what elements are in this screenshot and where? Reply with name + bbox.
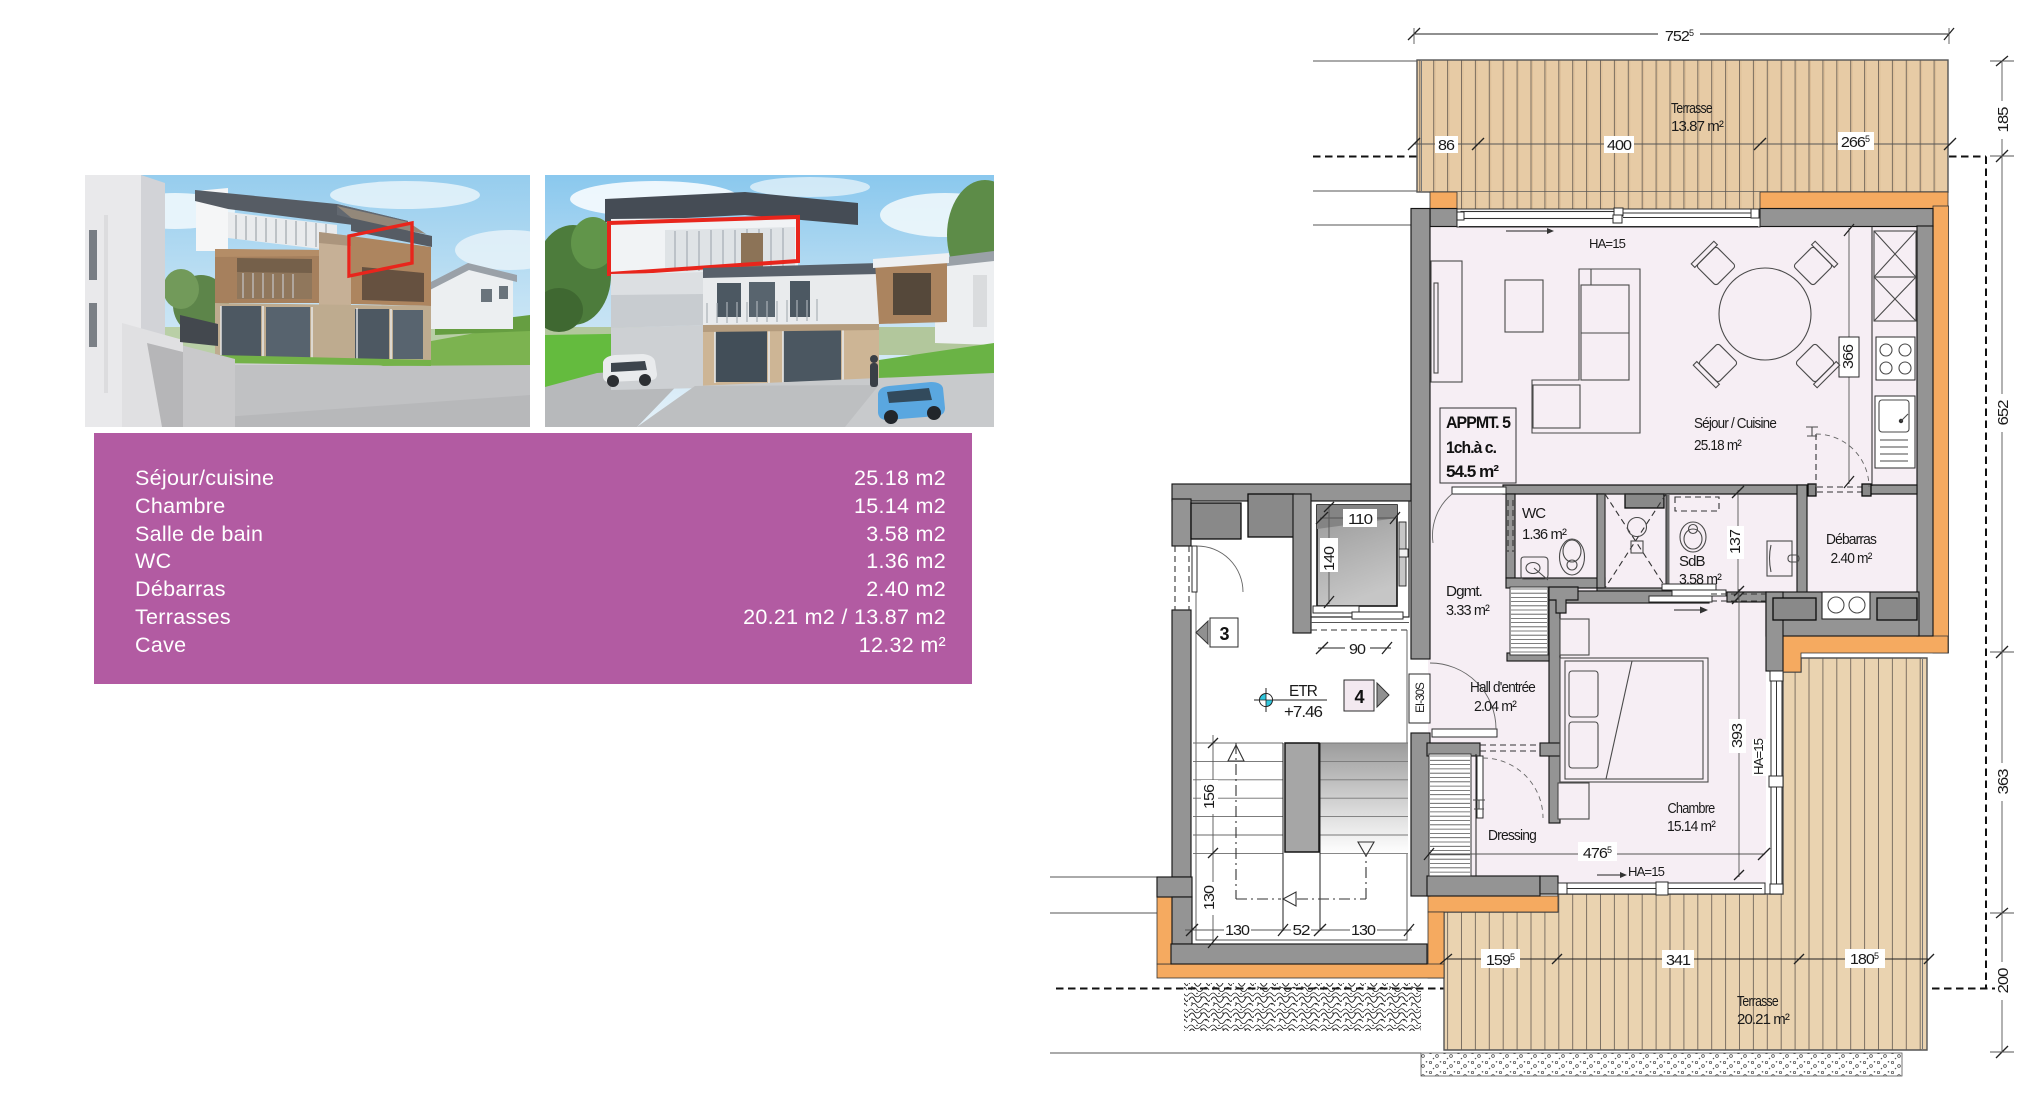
svg-text:2.04 m²: 2.04 m² [1474,698,1517,715]
svg-text:2.40 m²: 2.40 m² [1831,550,1873,567]
svg-text:HA=15: HA=15 [1752,738,1766,775]
svg-text:130: 130 [1351,922,1376,939]
svg-text:Débarras: Débarras [1826,531,1876,548]
svg-text:20.21 m²: 20.21 m² [1737,1011,1790,1028]
svg-text:Terrasse: Terrasse [1671,100,1712,117]
svg-text:25.18 m²: 25.18 m² [1694,437,1742,454]
svg-text:HA=15: HA=15 [1589,236,1626,251]
svg-text:52: 52 [1293,922,1311,939]
svg-text:363: 363 [1995,769,2012,795]
svg-text:SdB: SdB [1679,553,1706,570]
svg-text:200: 200 [1995,968,2012,994]
svg-text:HA=15: HA=15 [1628,864,1665,879]
svg-text:156: 156 [1201,784,1218,809]
svg-text:130: 130 [1201,885,1218,910]
svg-text:110: 110 [1348,511,1373,528]
svg-text:13.87 m²: 13.87 m² [1671,118,1724,135]
svg-text:185: 185 [1995,107,2012,133]
svg-text:ETR: ETR [1289,683,1318,700]
svg-text:137: 137 [1727,529,1744,554]
svg-text:Hall d'entrée: Hall d'entrée [1470,679,1536,696]
svg-text:130: 130 [1225,922,1250,939]
svg-text:400: 400 [1607,137,1632,154]
svg-text:652: 652 [1995,400,2012,426]
svg-text:WC: WC [1522,505,1546,522]
svg-text:Terrasse: Terrasse [1737,993,1778,1010]
svg-text:Chambre: Chambre [1668,800,1715,817]
svg-text:3.58 m²: 3.58 m² [1679,571,1722,588]
svg-text:86: 86 [1438,137,1455,154]
svg-text:APPMT. 5: APPMT. 5 [1446,414,1511,432]
svg-text:EI-30S: EI-30S [1415,682,1427,713]
svg-text:1.36 m²: 1.36 m² [1522,526,1567,543]
svg-text:366: 366 [1840,344,1857,369]
svg-text:+7.46: +7.46 [1284,704,1322,721]
svg-text:3.33 m²: 3.33 m² [1446,602,1490,619]
svg-text:15.14 m²: 15.14 m² [1667,818,1716,835]
svg-text:4: 4 [1354,687,1364,707]
svg-text:90: 90 [1349,641,1366,658]
svg-text:341: 341 [1666,952,1691,969]
svg-text:140: 140 [1321,546,1338,571]
svg-text:Séjour / Cuisine: Séjour / Cuisine [1694,415,1776,432]
svg-text:393: 393 [1729,723,1746,748]
svg-text:Dressing: Dressing [1488,827,1537,844]
svg-text:Dgmt.: Dgmt. [1446,583,1482,600]
svg-text:1ch.à c.: 1ch.à c. [1446,439,1496,457]
svg-text:54.5 m²: 54.5 m² [1446,463,1500,481]
svg-text:3: 3 [1219,624,1229,644]
